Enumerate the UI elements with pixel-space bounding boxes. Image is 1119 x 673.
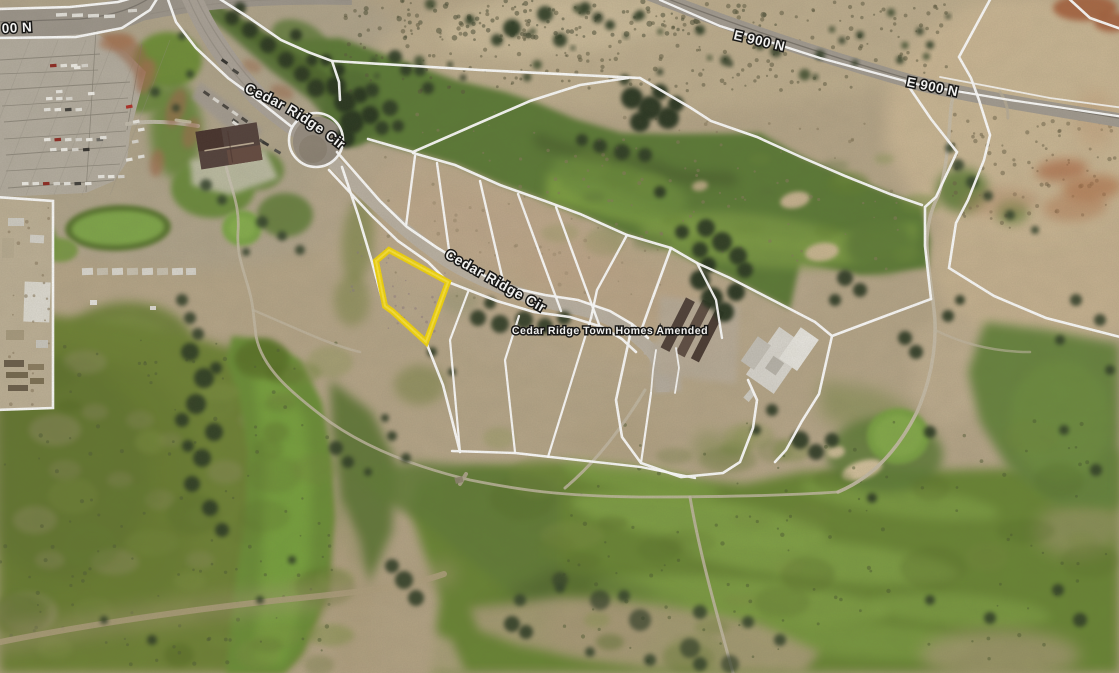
svg-text:Cedar Ridge Town Homes Amended: Cedar Ridge Town Homes Amended (512, 325, 708, 337)
svg-text:00 N: 00 N (1, 19, 32, 36)
